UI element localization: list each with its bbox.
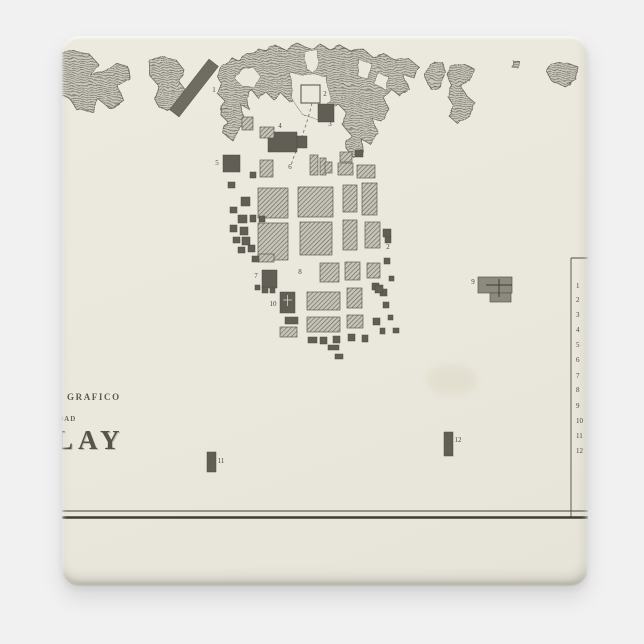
city-block (362, 183, 377, 215)
legend-number: 6 (576, 356, 580, 364)
city-block (333, 336, 340, 343)
city-block (343, 185, 357, 212)
city-block (355, 150, 363, 157)
city-block (338, 163, 353, 175)
city-block (230, 225, 237, 232)
city-block (238, 215, 247, 223)
feature-number-label: 11 (218, 457, 225, 465)
city-block (343, 220, 357, 250)
church-block (490, 293, 511, 302)
city-block (207, 452, 216, 472)
city-block (228, 182, 235, 188)
city-block (320, 337, 327, 344)
city-block (250, 172, 256, 178)
city-block (259, 216, 265, 222)
city-block (230, 207, 237, 213)
city-block (307, 292, 340, 310)
map-title-line-2: DAD (62, 415, 76, 423)
feature-number-label: 1 (212, 86, 216, 94)
city-block (389, 276, 394, 281)
harbor-square (301, 85, 320, 103)
city-block (393, 328, 399, 333)
city-block (223, 155, 240, 172)
city-block (262, 270, 277, 288)
city-block (300, 222, 332, 255)
city-block (250, 215, 256, 222)
map-title-line-3: LAY (62, 425, 125, 456)
city-block (280, 327, 297, 337)
feature-number-label: 10 (270, 300, 278, 308)
city-block (310, 155, 318, 175)
feature-number-label: 8 (298, 268, 302, 276)
city-block (380, 328, 385, 334)
coastline-blob (547, 61, 578, 86)
legend-number: 7 (576, 372, 580, 380)
feature-number-label: 2 (323, 90, 327, 98)
legend-number: 5 (576, 341, 580, 349)
city-block (258, 188, 288, 218)
city-block (258, 254, 274, 262)
city-block (362, 335, 368, 342)
city-block (325, 162, 332, 173)
legend-number: 1 (576, 282, 580, 290)
city-block (328, 345, 339, 350)
city-block (248, 245, 255, 252)
city-block (270, 288, 275, 293)
city-block (240, 227, 248, 235)
coastline-blob (62, 51, 130, 111)
city-block (357, 165, 375, 178)
feature-number-label: 3 (328, 120, 332, 128)
city-block (340, 152, 352, 162)
city-block (255, 285, 260, 290)
legend-number: 11 (576, 432, 583, 440)
magnet-product: 1293456781011122123456789101112 GRAFICO … (62, 36, 588, 586)
city-block (335, 354, 343, 359)
legend-number: 12 (576, 447, 584, 455)
feature-number-label: 7 (254, 272, 258, 280)
city-block (307, 317, 340, 332)
city-block (320, 263, 339, 282)
city-block (384, 258, 390, 264)
city-block (388, 315, 393, 320)
city-block (444, 432, 453, 456)
city-block (260, 127, 274, 138)
city-block (260, 160, 273, 177)
city-block (242, 117, 253, 130)
product-photo-background: 1293456781011122123456789101112 GRAFICO … (0, 0, 644, 644)
legend-number: 2 (576, 296, 580, 304)
feature-number-label: 4 (278, 122, 282, 130)
city-block (308, 337, 317, 343)
city-block (252, 256, 259, 262)
feature-number-label: 12 (455, 436, 463, 444)
city-block (297, 136, 307, 148)
antique-map-graphic: 1293456781011122123456789101112 (62, 36, 588, 586)
legend-number: 4 (576, 326, 580, 334)
city-block (375, 285, 383, 293)
city-block (285, 317, 298, 324)
city-block (242, 237, 250, 245)
city-block (262, 287, 268, 293)
map-title-line-1: GRAFICO (67, 392, 121, 402)
map-canvas: 1293456781011122123456789101112 (62, 36, 588, 586)
paper-stain (426, 364, 478, 396)
city-block (348, 334, 355, 341)
legend-number: 10 (576, 417, 584, 425)
feature-number-label: 2 (386, 243, 390, 251)
city-block (373, 318, 380, 325)
city-block (298, 187, 333, 217)
city-block (365, 222, 380, 248)
legend-number: 8 (576, 386, 580, 394)
city-block (347, 315, 363, 328)
city-block (367, 263, 380, 278)
coastline-blob (425, 61, 446, 88)
feature-number-label: 5 (215, 159, 219, 167)
legend-number: 9 (576, 402, 580, 410)
legend-number: 3 (576, 311, 580, 319)
city-block (383, 302, 389, 308)
feature-number-label: 6 (288, 163, 292, 171)
city-block (241, 197, 250, 206)
coastline-blob (511, 60, 519, 68)
city-block (233, 237, 240, 243)
city-block (347, 288, 362, 308)
city-block (345, 262, 360, 280)
city-block (238, 247, 245, 253)
city-block (383, 229, 391, 237)
feature-number-label: 9 (471, 278, 475, 286)
coastline-blob (448, 63, 474, 124)
